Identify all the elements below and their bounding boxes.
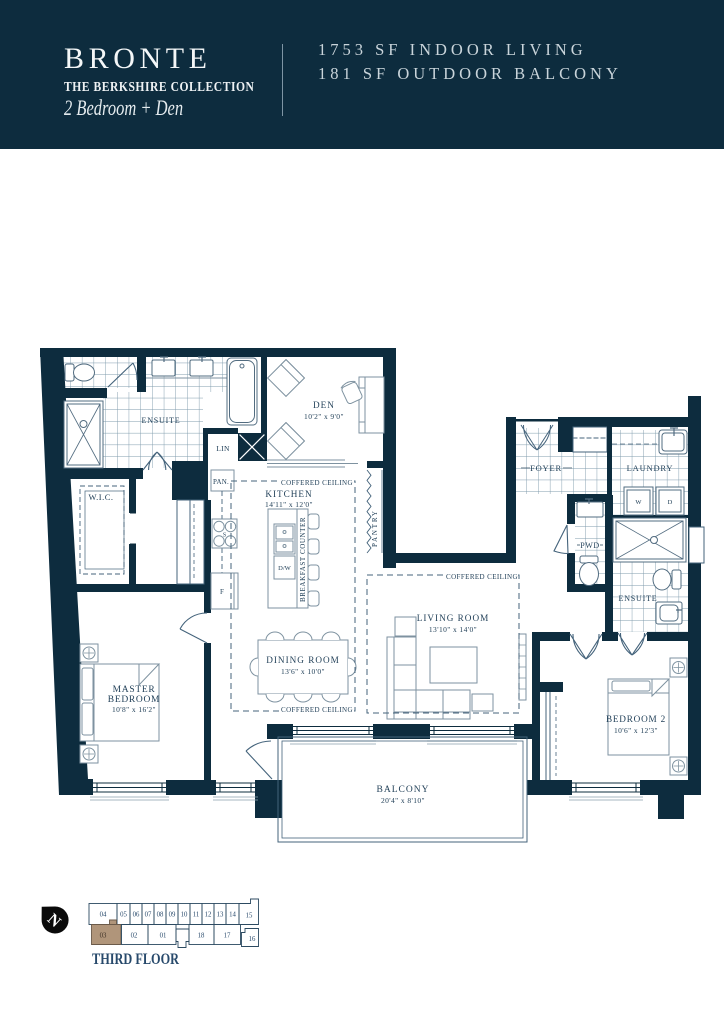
svg-text:04: 04 [100,912,107,919]
svg-text:14'11" x 12'0": 14'11" x 12'0" [265,500,313,509]
svg-text:D: D [668,499,673,506]
svg-text:D/W: D/W [278,565,292,572]
svg-text:PAN.: PAN. [213,478,229,486]
svg-text:ENSUITE: ENSUITE [142,416,181,425]
svg-text:03: 03 [100,933,107,940]
svg-text:PWD: PWD [580,541,600,550]
svg-text:14: 14 [229,912,236,919]
svg-text:COFFERED CEILING: COFFERED CEILING [281,479,353,487]
svg-text:09: 09 [169,912,176,919]
svg-text:07: 07 [145,912,152,919]
svg-text:10: 10 [181,912,188,919]
svg-text:12: 12 [205,912,212,919]
svg-text:PANTRY: PANTRY [371,509,379,547]
svg-text:BREAKFAST COUNTER: BREAKFAST COUNTER [299,517,307,602]
svg-text:THIRD FLOOR: THIRD FLOOR [92,951,180,968]
svg-text:FOYER: FOYER [530,463,562,473]
svg-text:18: 18 [198,933,205,940]
svg-text:S: S [223,533,226,539]
svg-text:08: 08 [157,912,164,919]
svg-text:10'8" x 16'2": 10'8" x 16'2" [112,705,156,714]
svg-text:13: 13 [217,912,224,919]
svg-text:ENSUITE: ENSUITE [619,594,658,603]
svg-text:W: W [635,499,642,506]
svg-text:LIN: LIN [216,444,230,453]
svg-text:02: 02 [131,933,138,940]
svg-text:BEDROOM 2: BEDROOM 2 [606,714,666,724]
svg-text:16: 16 [249,936,256,943]
svg-text:05: 05 [120,912,127,919]
svg-text:LAUNDRY: LAUNDRY [627,463,674,473]
svg-text:COFFERED CEILING: COFFERED CEILING [281,706,353,714]
svg-text:COFFERED CEILING: COFFERED CEILING [446,573,518,581]
svg-text:KITCHEN: KITCHEN [265,489,312,499]
svg-text:DEN: DEN [313,400,335,410]
svg-text:17: 17 [224,933,231,940]
svg-text:F: F [220,588,224,596]
svg-text:W.I.C.: W.I.C. [88,492,113,502]
svg-text:15: 15 [246,913,253,920]
svg-text:BALCONY: BALCONY [377,785,430,795]
svg-text:13'6" x 10'0": 13'6" x 10'0" [281,667,325,676]
svg-text:20'4" x 8'10": 20'4" x 8'10" [381,796,425,805]
svg-text:10'6" x 12'3": 10'6" x 12'3" [614,726,658,735]
svg-text:BEDROOM: BEDROOM [108,695,160,705]
svg-text:13'10" x 14'0": 13'10" x 14'0" [429,625,477,634]
svg-text:MASTER: MASTER [113,685,156,695]
svg-text:DINING ROOM: DINING ROOM [266,655,340,665]
svg-text:01: 01 [160,933,167,940]
svg-text:11: 11 [193,912,200,919]
svg-text:LIVING ROOM: LIVING ROOM [417,613,490,623]
svg-text:10'2" x 9'0": 10'2" x 9'0" [304,412,344,421]
svg-text:06: 06 [133,912,140,919]
